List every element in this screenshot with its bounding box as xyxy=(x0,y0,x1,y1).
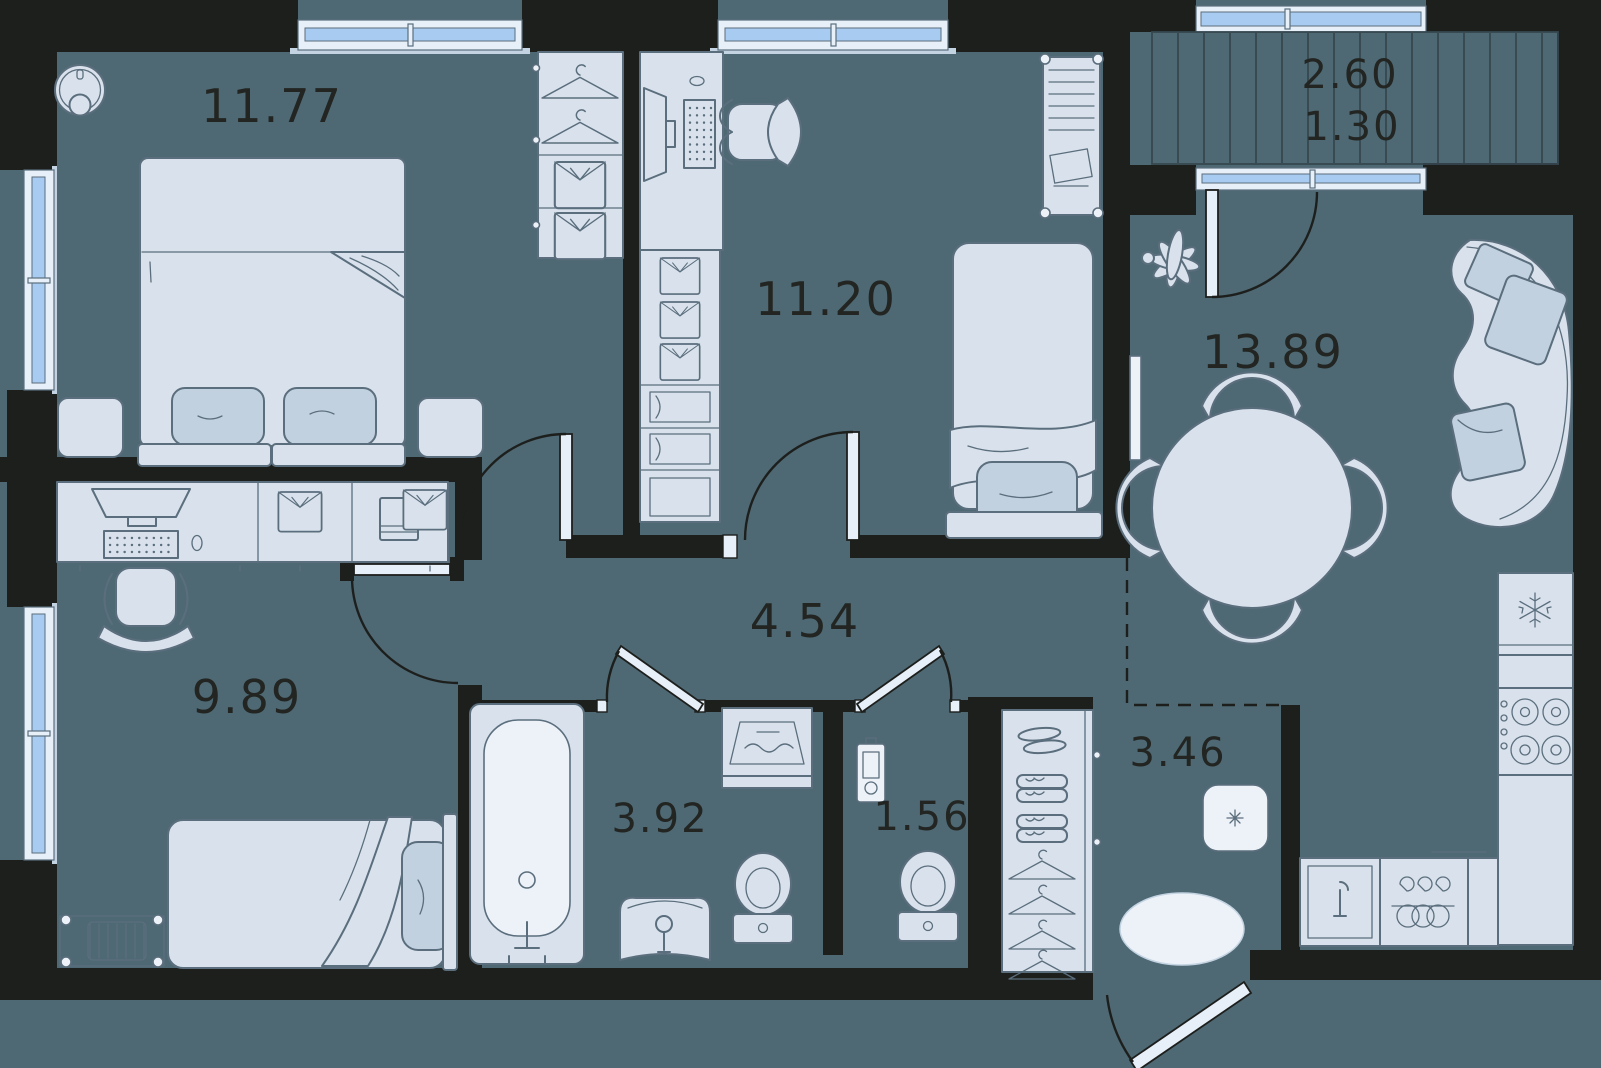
monitor xyxy=(644,88,666,181)
headboard xyxy=(272,444,405,466)
window-bedroom-main-left xyxy=(24,166,57,394)
monitor xyxy=(92,489,190,517)
bathroom-sink xyxy=(620,898,710,960)
label-bedroom-small: 9.89 xyxy=(192,670,302,724)
wall-balcony-left xyxy=(1128,0,1196,32)
wall-wc-right xyxy=(968,697,1002,973)
keyboard xyxy=(104,531,178,558)
label-hallway: 4.54 xyxy=(750,594,860,648)
label-entry-hall: 3.46 xyxy=(1129,730,1226,776)
balcony-glazing xyxy=(1196,6,1426,32)
room-hallway: 4.54 xyxy=(750,594,860,648)
wall-left-mid xyxy=(7,390,57,607)
label-bedroom-second: 11.20 xyxy=(755,272,897,326)
robot-vacuum-icon xyxy=(55,65,105,116)
wall-corner-ne xyxy=(1557,0,1601,163)
label-bedroom-main: 11.77 xyxy=(201,79,343,133)
keyboard xyxy=(684,100,715,168)
wall-jog xyxy=(455,457,482,560)
window-bedroom-main-top xyxy=(290,20,530,54)
double-bed xyxy=(138,158,405,466)
wall-hall-top-left xyxy=(566,535,737,558)
wardrobe-hangers xyxy=(533,52,624,259)
toilet xyxy=(733,853,793,943)
wall-bedroom2-left xyxy=(623,52,640,535)
bathtub xyxy=(470,704,584,964)
headboard xyxy=(443,814,457,970)
wall-entry-top xyxy=(1002,697,1093,709)
wall-top-mid xyxy=(522,0,718,52)
kitchen-counter-column xyxy=(1498,655,1573,945)
floor-plan: 11.77 xyxy=(0,0,1601,1068)
fridge xyxy=(1498,573,1573,655)
sofa-pillow xyxy=(1450,402,1527,482)
wall-bath-wc-divider xyxy=(823,712,843,955)
window-bedroom-small-left xyxy=(24,603,57,864)
round-table xyxy=(1152,408,1352,608)
headboard xyxy=(138,444,271,466)
wall-kitchen-left xyxy=(1281,705,1300,973)
bookshelf xyxy=(1040,54,1103,218)
pillow xyxy=(284,388,376,445)
tv xyxy=(1130,356,1141,460)
kitchen-counter-row xyxy=(1300,852,1498,946)
shoe-wardrobe xyxy=(1002,710,1101,979)
balcony-door-window xyxy=(1196,168,1426,190)
single-bed xyxy=(168,814,457,970)
single-bed xyxy=(946,243,1102,538)
water-heater xyxy=(857,738,885,802)
sofa xyxy=(1450,240,1572,527)
desk-pc xyxy=(640,52,723,250)
wall-bottom-right xyxy=(1250,950,1601,980)
wall-living-ne xyxy=(1423,163,1573,215)
toilet xyxy=(898,851,958,941)
desk-shelf-counter xyxy=(57,482,448,571)
wall-bottom-left xyxy=(0,968,1093,1000)
wall-top-right xyxy=(948,0,1128,52)
washing-machine xyxy=(722,708,812,788)
entry-post-right xyxy=(1250,950,1263,980)
label-balcony-total: 2.60 xyxy=(1301,52,1398,98)
office-chair xyxy=(720,98,801,166)
pouf xyxy=(1203,785,1268,851)
stove xyxy=(1498,688,1573,775)
dresser xyxy=(640,250,720,522)
door-mat xyxy=(1120,893,1244,965)
label-bathroom: 3.92 xyxy=(611,796,708,842)
label-living-kitchen: 13.89 xyxy=(1202,325,1344,379)
kitchen-sink xyxy=(1300,858,1380,946)
dishwasher xyxy=(1380,858,1468,946)
wall-bedroom2-right xyxy=(1103,32,1130,535)
window-bedroom-second-top xyxy=(710,20,956,54)
pillow xyxy=(172,388,264,445)
label-balcony-counted: 1.30 xyxy=(1303,104,1400,150)
nightstand xyxy=(58,398,123,457)
floor-plan-canvas: 11.77 xyxy=(0,0,1601,1068)
wall-balconydoor-left xyxy=(1128,165,1196,215)
footboard xyxy=(946,512,1102,538)
label-wc: 1.56 xyxy=(873,794,970,840)
wall-left-upper xyxy=(0,0,57,170)
nightstand xyxy=(418,398,483,457)
wall-right xyxy=(1573,163,1601,953)
